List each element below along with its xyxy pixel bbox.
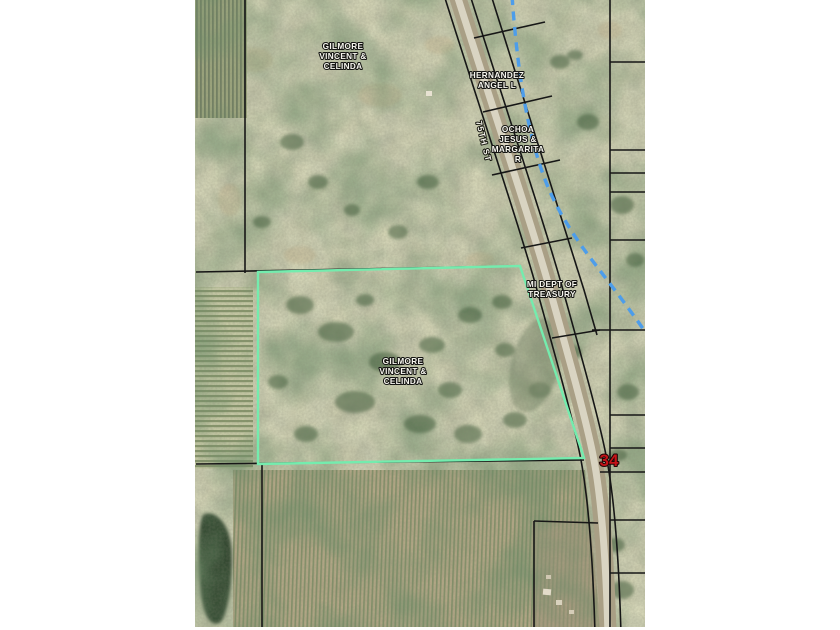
owner-label-line: R bbox=[515, 155, 521, 164]
owner-label-line: GILMORE bbox=[383, 357, 424, 366]
owner-label-gilmore-north: GILMORE VINCENT & CELINDA bbox=[319, 42, 366, 71]
owner-label-line: VINCENT & bbox=[379, 367, 426, 376]
aerial-map-canvas[interactable]: GILMORE VINCENT & CELINDA HERNANDEZ ANGE… bbox=[0, 0, 840, 630]
owner-label-line: HERNANDEZ bbox=[470, 71, 525, 80]
owner-label-line: VINCENT & bbox=[319, 52, 366, 61]
owner-label-line: JESUS & bbox=[499, 135, 537, 144]
owner-label-line: CELINDA bbox=[384, 377, 423, 386]
owner-label-line: OCHOA bbox=[502, 125, 534, 134]
owner-label-line: TREASURY bbox=[528, 290, 576, 299]
owner-label-line: CELINDA bbox=[324, 62, 363, 71]
owner-label-hernandez: HERNANDEZ ANGEL L bbox=[470, 71, 525, 90]
owner-label-treasury: MI DEPT OF TREASURY bbox=[527, 280, 577, 299]
map-viewer: GILMORE VINCENT & CELINDA HERNANDEZ ANGE… bbox=[0, 0, 840, 630]
owner-label-line: GILMORE bbox=[323, 42, 364, 51]
owner-label-gilmore-selected: GILMORE VINCENT & CELINDA bbox=[379, 357, 426, 386]
owner-label-line: MI DEPT OF bbox=[527, 280, 577, 289]
owner-label-line: ANGEL L bbox=[478, 81, 516, 90]
owner-label-line: MARGARITA bbox=[492, 145, 545, 154]
section-number-label: 34 bbox=[600, 451, 619, 470]
